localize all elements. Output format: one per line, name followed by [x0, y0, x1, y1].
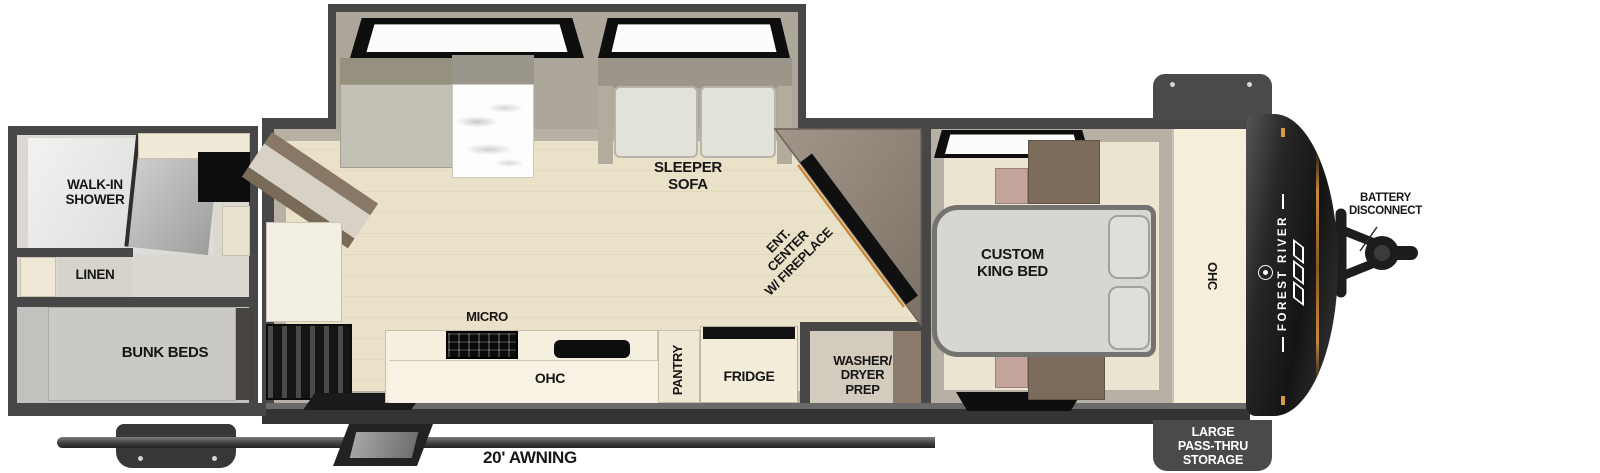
king-bed-pillow-bottom — [1108, 286, 1150, 350]
label-pass-thru-storage: LARGE PASS-THRU STORAGE — [1153, 421, 1273, 471]
label-sleeper-sofa: SLEEPER SOFA — [628, 160, 748, 193]
front-cap-accent-tick-top — [1281, 128, 1285, 137]
floorplan-canvas: FOREST RIVER WALK-IN SHOWER LINEN BUNK B… — [0, 0, 1600, 473]
label-washer-dryer-prep: WASHER/ DRYER PREP — [815, 354, 910, 397]
label-awning: 20' AWNING — [450, 449, 610, 468]
label-battery-disconnect: BATTERY DISCONNECT — [1328, 192, 1443, 217]
front-cap-accent-tick-bottom — [1281, 396, 1285, 405]
brand-name: FOREST RIVER — [1277, 215, 1289, 331]
forest-river-emblem-icon — [1258, 266, 1273, 281]
label-ohc-bedroom: OHC — [1205, 231, 1219, 321]
label-micro: MICRO — [437, 310, 537, 324]
brand-text-row: FOREST RIVER — [1277, 194, 1289, 352]
forest-river-logo: FOREST RIVER — [1246, 173, 1316, 373]
label-pantry: PANTRY — [671, 325, 685, 415]
label-linen: LINEN — [60, 268, 130, 283]
label-walk-in-shower: WALK-IN SHOWER — [40, 178, 150, 208]
logo-dash — [1282, 194, 1284, 209]
label-fridge: FRIDGE — [704, 369, 794, 384]
king-bed-pillow-top — [1108, 215, 1150, 279]
label-custom-king-bed: CUSTOM KING BED — [950, 247, 1075, 280]
label-bunk-beds: BUNK BEDS — [100, 345, 230, 362]
front-cap-accent-line — [1316, 150, 1319, 382]
logo-dash — [1282, 337, 1284, 352]
logo-slashes-icon — [1293, 244, 1304, 303]
label-ohc-kitchen: OHC — [505, 371, 595, 386]
